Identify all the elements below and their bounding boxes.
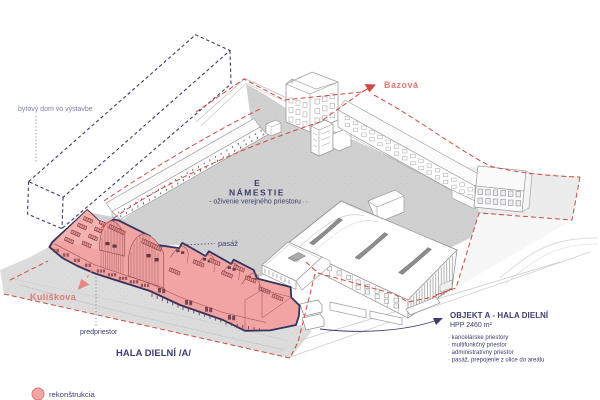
svg-text:bytový dom vo výstavbe: bytový dom vo výstavbe (18, 106, 93, 113)
svg-text:HALA DIELNÍ /A/: HALA DIELNÍ /A/ (116, 347, 191, 358)
svg-text:Bazová: Bazová (384, 80, 419, 90)
svg-text:E: E (254, 178, 260, 188)
svg-text:· pasáž, prepojenie z ulice do: · pasáž, prepojenie z ulice do areálu (448, 358, 544, 364)
svg-text:Kulíškova: Kulíškova (30, 292, 77, 302)
svg-text:- oživenie verejného priestoru: - oživenie verejného priestoru (209, 199, 301, 206)
svg-text:pasáž: pasáž (218, 239, 238, 248)
svg-text:HPP 2460 m²: HPP 2460 m² (450, 322, 493, 329)
svg-text:· administratívny priestor: · administratívny priestor (448, 350, 514, 356)
svg-text:OBJEKT A - HALA DIELNÍ: OBJEKT A - HALA DIELNÍ (450, 311, 549, 320)
svg-text:predpriestor: predpriestor (80, 329, 118, 336)
svg-text:NÁMESTIE: NÁMESTIE (229, 188, 285, 198)
svg-text:· kancelárske priestory: · kancelárske priestory (448, 335, 508, 341)
svg-text:rekonštrukcia: rekonštrukcia (49, 390, 95, 399)
svg-text:· multifunkčný priestor: · multifunkčný priestor (448, 343, 507, 349)
